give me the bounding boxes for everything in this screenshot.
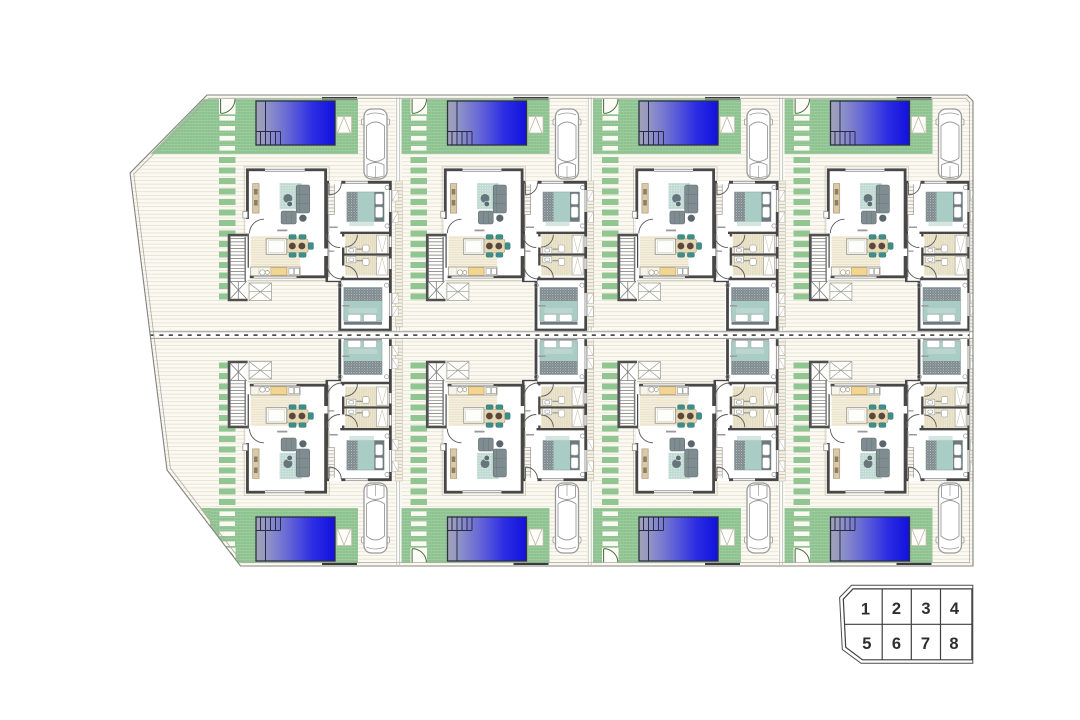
svg-text:8: 8: [949, 635, 958, 653]
svg-text:4: 4: [950, 600, 960, 618]
svg-text:7: 7: [921, 635, 930, 653]
svg-text:6: 6: [892, 635, 901, 653]
svg-text:3: 3: [921, 600, 930, 618]
svg-text:2: 2: [892, 600, 901, 618]
svg-text:1: 1: [861, 600, 870, 618]
svg-text:5: 5: [862, 635, 871, 653]
